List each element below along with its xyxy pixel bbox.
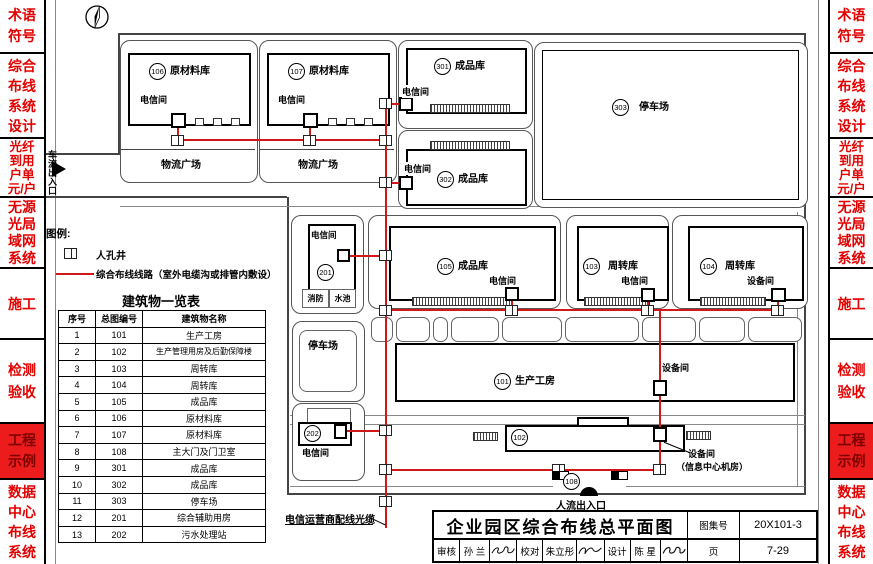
site-boundary-line — [287, 197, 289, 495]
telecom-room-box-105 — [505, 287, 519, 301]
table-row: 6106原材料库 — [59, 410, 266, 427]
right-tab-sidebar: 术语符号 综合布线系统设计 光纤到用户单元/户 无源光局域网系统 施工 检测验收… — [828, 0, 873, 564]
ramp-hatch — [473, 432, 498, 441]
cable-line — [386, 309, 776, 311]
telecom-room-box-201 — [337, 249, 350, 262]
manhole-icon — [379, 464, 392, 475]
door-mark — [364, 118, 373, 126]
reviewer-name: 孙 兰 — [460, 540, 490, 561]
building-label-201: 201 — [317, 264, 338, 281]
table-row: 2102生产管理用房及后勤保障楼 — [59, 344, 266, 361]
telecom-room-label-302: 电信间 — [404, 162, 431, 175]
gate-leaf — [611, 471, 628, 480]
building-label-101: 101生产工房 — [494, 372, 555, 390]
fence-line — [626, 486, 805, 487]
proofreader-signature — [577, 540, 604, 561]
sidebar-item-design[interactable]: 综合布线系统设计 — [0, 54, 44, 139]
building-label-103: 103周转库 — [583, 257, 638, 275]
sidebar-item-datacenter[interactable]: 数据中心布线系统 — [0, 480, 44, 564]
drawing-title: 企业园区综合布线总平面图 — [434, 512, 688, 538]
manhole-icon — [653, 464, 666, 475]
site-boundary-line — [118, 33, 806, 35]
carport-stall — [642, 317, 696, 342]
entrance-road-line — [46, 196, 287, 198]
carport-stall — [565, 317, 639, 342]
sidebar-item-terms[interactable]: 术语符号 — [830, 0, 873, 54]
building-label-104: 104周转库 — [700, 257, 755, 275]
designer-signature — [661, 540, 688, 561]
building-label-102: 102 — [511, 429, 532, 446]
telecom-room-label-103: 电信间 — [621, 274, 648, 287]
equipment-room-box-101 — [653, 380, 667, 396]
proof-label: 校对 — [517, 540, 543, 561]
plaza-divider-line — [121, 149, 255, 150]
telecom-room-label-301: 电信间 — [402, 85, 429, 98]
building-table: 序号总图编号建筑物名称 1101生产工房 2102生产管理用房及后勤保障楼 31… — [58, 310, 266, 543]
carport-stall — [699, 317, 745, 342]
drawing-sheet: 术语符号 综合布线系统设计 光纤到用户单元/户 无源光局域网系统 施工 检测验收… — [0, 0, 873, 564]
building-label-303: 303停车场 — [612, 98, 669, 116]
parking-small-label: 停车场 — [308, 337, 338, 352]
sidebar-item-pon[interactable]: 无源光局域网系统 — [0, 198, 44, 269]
page-label: 页 — [688, 540, 740, 561]
door-mark — [195, 118, 204, 126]
telecom-room-box-301 — [399, 97, 413, 111]
info-center-room-label-102: （信息中心机房） — [676, 460, 748, 473]
sheet-no-value: 20X101-3 — [740, 512, 816, 538]
loading-dock-hatch — [430, 141, 510, 150]
manhole-icon — [303, 135, 316, 146]
info-center-room-box-102 — [653, 427, 667, 442]
sidebar-item-ftth[interactable]: 光纤到用户单元/户 — [830, 139, 873, 198]
fence-line — [290, 486, 553, 487]
pedestrian-entrance-arrow-icon — [580, 487, 598, 496]
review-label: 审核 — [434, 540, 460, 561]
building-label-108: 108 — [563, 473, 584, 490]
table-row: 12201综合辅助用房 — [59, 510, 266, 527]
legend-heading: 图例: — [46, 226, 71, 241]
carport-stall — [396, 317, 430, 342]
manhole-icon — [379, 177, 392, 188]
sidebar-item-ftth[interactable]: 光纤到用户单元/户 — [0, 139, 44, 198]
reviewer-signature — [490, 540, 517, 561]
building-101 — [395, 343, 795, 402]
carport-stall — [451, 317, 499, 342]
sidebar-item-examples-active[interactable]: 工程示例 — [0, 424, 44, 480]
title-block: 企业园区综合布线总平面图 图集号 20X101-3 审核 孙 兰 校对 朱立彤 … — [432, 510, 818, 563]
sidebar-item-construction[interactable]: 施工 — [0, 269, 44, 340]
table-row: 10302成品库 — [59, 476, 266, 493]
building-label-107: 107原材料库 — [288, 62, 349, 80]
vehicle-entrance-label: 车流出入口 — [46, 150, 59, 198]
loading-dock-hatch — [412, 297, 512, 306]
legend-cable-label: 综合布线线路（室外电缆沟或排管内敷设） — [96, 267, 277, 281]
sidebar-item-pon[interactable]: 无源光局域网系统 — [830, 198, 873, 269]
designer-name: 陈 星 — [631, 540, 661, 561]
page-no-value: 7-29 — [740, 540, 816, 561]
plaza-divider-line — [260, 149, 394, 150]
door-mark — [231, 118, 240, 126]
ramp-hatch — [686, 431, 711, 440]
door-mark — [328, 118, 337, 126]
manhole-icon — [641, 305, 654, 316]
table-row: 13202污水处理站 — [59, 526, 266, 543]
manhole-icon — [379, 135, 392, 146]
site-boundary-line — [287, 493, 806, 495]
fire-pool-cell: 消防 — [302, 289, 329, 308]
legend-manhole-icon — [64, 248, 77, 259]
table-row: 3103周转库 — [59, 360, 266, 377]
equipment-room-label-104: 设备间 — [747, 274, 774, 287]
telecom-room-box-107 — [303, 113, 318, 128]
table-row: 1101生产工房 — [59, 327, 266, 344]
table-row: 9301成品库 — [59, 460, 266, 477]
telecom-room-box-103 — [641, 288, 655, 302]
parking-lot-303 — [542, 50, 799, 200]
sheet-frame-line — [55, 0, 56, 564]
cable-line — [177, 139, 387, 141]
door-mark — [213, 118, 222, 126]
loading-dock-hatch — [700, 297, 766, 306]
sidebar-item-construction[interactable]: 施工 — [830, 269, 873, 340]
carport-stall — [371, 317, 393, 342]
left-tab-sidebar: 术语符号 综合布线系统设计 光纤到用户单元/户 无源光局域网系统 施工 检测验收… — [0, 0, 46, 564]
equipment-room-label-102: 设备间 — [688, 447, 715, 460]
building-label-106: 106原材料库 — [149, 62, 210, 80]
sidebar-item-inspection[interactable]: 检测验收 — [830, 340, 873, 424]
telecom-room-box-302 — [399, 176, 413, 190]
table-row: 11303停车场 — [59, 493, 266, 510]
manhole-icon — [505, 305, 518, 316]
carport-stall — [502, 317, 562, 342]
manhole-icon — [171, 135, 184, 146]
building-table-title: 建筑物一览表 — [58, 291, 264, 310]
telecom-room-box-202 — [334, 424, 347, 439]
legend-manhole-label: 人孔井 — [96, 247, 126, 262]
manhole-icon — [771, 305, 784, 316]
telecom-room-box-106 — [171, 113, 186, 128]
sidebar-item-design[interactable]: 综合布线系统设计 — [830, 54, 873, 139]
sidebar-item-inspection[interactable]: 检测验收 — [0, 340, 44, 424]
manhole-icon — [379, 98, 392, 109]
sidebar-item-examples-active[interactable]: 工程示例 — [830, 424, 873, 480]
manhole-icon — [379, 425, 392, 436]
sidebar-item-terms[interactable]: 术语符号 — [0, 0, 44, 54]
door-mark — [346, 118, 355, 126]
legend-cable-icon — [56, 273, 94, 275]
manhole-icon — [379, 496, 392, 507]
building-label-105: 105成品库 — [437, 257, 488, 275]
sheet-no-label: 图集号 — [688, 512, 740, 538]
telecom-room-label-106: 电信间 — [140, 93, 167, 106]
table-row: 5105成品库 — [59, 393, 266, 410]
fire-pool-cell: 水池 — [329, 289, 356, 308]
design-label: 设计 — [605, 540, 631, 561]
telecom-room-label-201: 电信间 — [311, 229, 337, 241]
equipment-room-label-101: 设备间 — [662, 361, 689, 374]
telecom-room-label-202: 电信间 — [302, 446, 329, 459]
building-label-202: 202 — [304, 425, 325, 442]
logistics-plaza-label: 物流广场 — [298, 156, 338, 171]
sheet-frame-line — [818, 0, 819, 564]
manhole-icon — [379, 250, 392, 261]
carport-stall — [433, 317, 448, 342]
manhole-icon — [379, 305, 392, 316]
road-line — [290, 415, 805, 416]
sidebar-item-datacenter[interactable]: 数据中心布线系统 — [830, 480, 873, 564]
tank-202 — [307, 408, 351, 423]
table-row: 8108主大门及门卫室 — [59, 443, 266, 460]
table-row: 4104周转库 — [59, 377, 266, 394]
proofreader-name: 朱立彤 — [543, 540, 577, 561]
cable-line — [347, 430, 380, 432]
telecom-room-label-107: 电信间 — [278, 93, 305, 106]
loading-dock-hatch — [430, 104, 510, 113]
telecom-room-label-105: 电信间 — [489, 274, 516, 287]
table-row: 7107原材料库 — [59, 427, 266, 444]
equipment-room-box-104 — [771, 288, 786, 302]
carport-stall — [748, 317, 802, 342]
logistics-plaza-label: 物流广场 — [161, 156, 201, 171]
north-arrow-icon — [84, 4, 110, 30]
leader-line — [285, 524, 373, 525]
building-label-301: 301成品库 — [434, 57, 485, 75]
building-label-302: 302成品库 — [437, 170, 488, 188]
